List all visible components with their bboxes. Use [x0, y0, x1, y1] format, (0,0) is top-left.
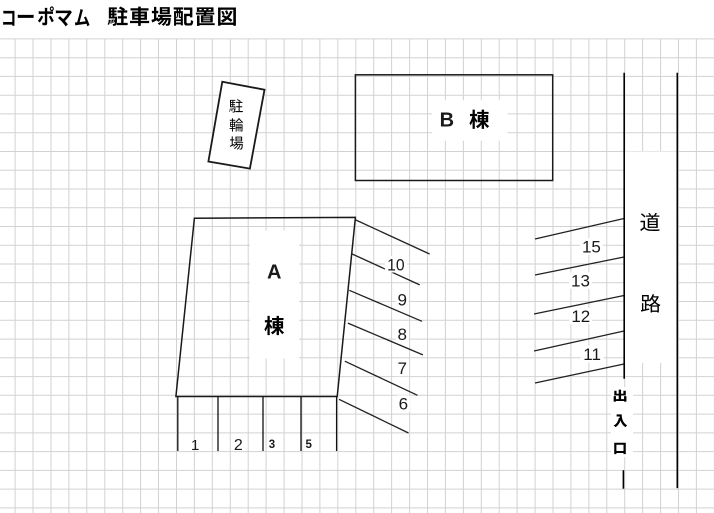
svg-text:9: 9 — [397, 291, 406, 310]
svg-text:15: 15 — [582, 237, 601, 256]
svg-text:13: 13 — [571, 272, 590, 291]
svg-text:1: 1 — [191, 437, 199, 454]
svg-text:10: 10 — [387, 255, 405, 274]
svg-text:6: 6 — [399, 395, 408, 414]
svg-text:B: B — [440, 110, 454, 132]
svg-text:7: 7 — [397, 359, 406, 378]
svg-text:8: 8 — [397, 325, 406, 344]
svg-text:3: 3 — [269, 439, 275, 451]
svg-text:A: A — [267, 261, 281, 283]
svg-text:5: 5 — [305, 439, 312, 451]
svg-text:2: 2 — [234, 437, 243, 454]
svg-text:11: 11 — [583, 345, 601, 364]
svg-text:12: 12 — [571, 307, 590, 326]
